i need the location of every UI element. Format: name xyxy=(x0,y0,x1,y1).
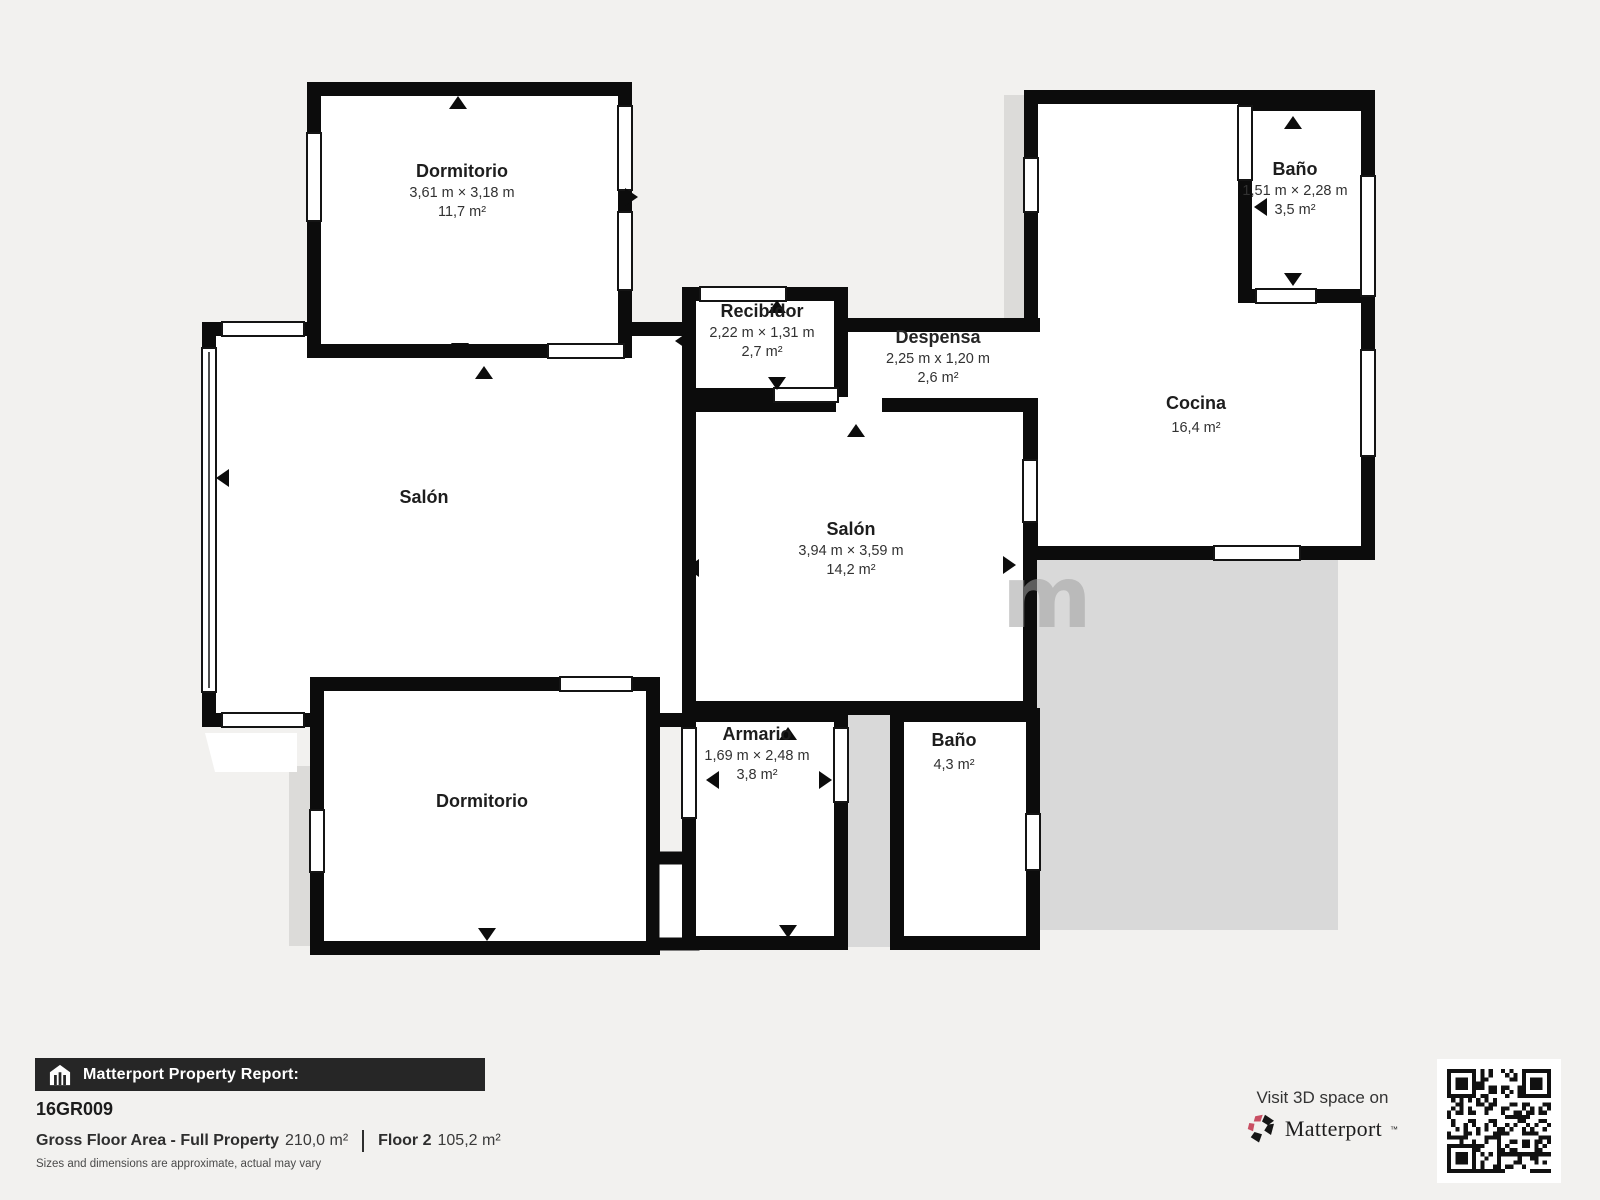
report-bar: Matterport Property Report: xyxy=(35,1058,485,1091)
room-label-bano-bottom: Baño 4,3 m² xyxy=(932,729,977,775)
room-label-recibidor: Recibidor 2,22 m × 1,31 m 2,7 m² xyxy=(709,300,814,362)
floor-area-value: 105,2 m² xyxy=(438,1132,501,1150)
matterport-logo-icon xyxy=(1247,1114,1277,1144)
gross-floor-area-value: 210,0 m² xyxy=(285,1132,348,1150)
area-summary-line: Gross Floor Area - Full Property 210,0 m… xyxy=(36,1130,501,1152)
room-label-despensa: Despensa 2,25 m x 1,20 m 2,6 m² xyxy=(886,326,990,388)
room-label-dormitorio-bl: Dormitorio xyxy=(436,790,528,814)
visit-3d-label: Visit 3D space on xyxy=(1247,1088,1398,1108)
qr-code-svg xyxy=(1447,1069,1551,1173)
divider xyxy=(362,1130,364,1152)
room-dormitorio-bl xyxy=(317,684,653,948)
matterport-brand-row: Matterport™ xyxy=(1247,1114,1398,1144)
gross-floor-area-label: Gross Floor Area - Full Property xyxy=(36,1132,279,1150)
visit-3d-block: Visit 3D space on Matterport™ xyxy=(1247,1088,1398,1144)
disclaimer-text: Sizes and dimensions are approximate, ac… xyxy=(36,1158,321,1170)
room-label-salon-left: Salón xyxy=(399,486,448,510)
room-label-bano-tr: Baño 1,51 m × 2,28 m 3,5 m² xyxy=(1242,158,1347,220)
floor-plan-svg xyxy=(0,0,1600,1200)
property-report-page: s m Dormitorio 3,61 m × 3,18 m 11,7 m² B… xyxy=(0,0,1600,1200)
room-label-cocina: Cocina 16,4 m² xyxy=(1166,392,1226,438)
room-salon-left xyxy=(209,329,689,720)
floor-label: Floor 2 xyxy=(378,1132,431,1150)
report-bar-label: Matterport Property Report: xyxy=(83,1066,299,1084)
room-label-dormitorio-tl: Dormitorio 3,61 m × 3,18 m 11,7 m² xyxy=(409,160,514,222)
qr-code xyxy=(1437,1059,1561,1183)
balcony-stub xyxy=(205,733,297,772)
trademark-mark: ™ xyxy=(1390,1125,1398,1134)
property-id: 16GR009 xyxy=(36,1099,113,1120)
matterport-house-icon xyxy=(49,1064,71,1086)
room-label-armario: Armario 1,69 m × 2,48 m 3,8 m² xyxy=(704,723,809,785)
door-gap xyxy=(836,397,882,413)
room-label-salon-center: Salón 3,94 m × 3,59 m 14,2 m² xyxy=(798,518,903,580)
matterport-wordmark: Matterport xyxy=(1285,1116,1382,1142)
